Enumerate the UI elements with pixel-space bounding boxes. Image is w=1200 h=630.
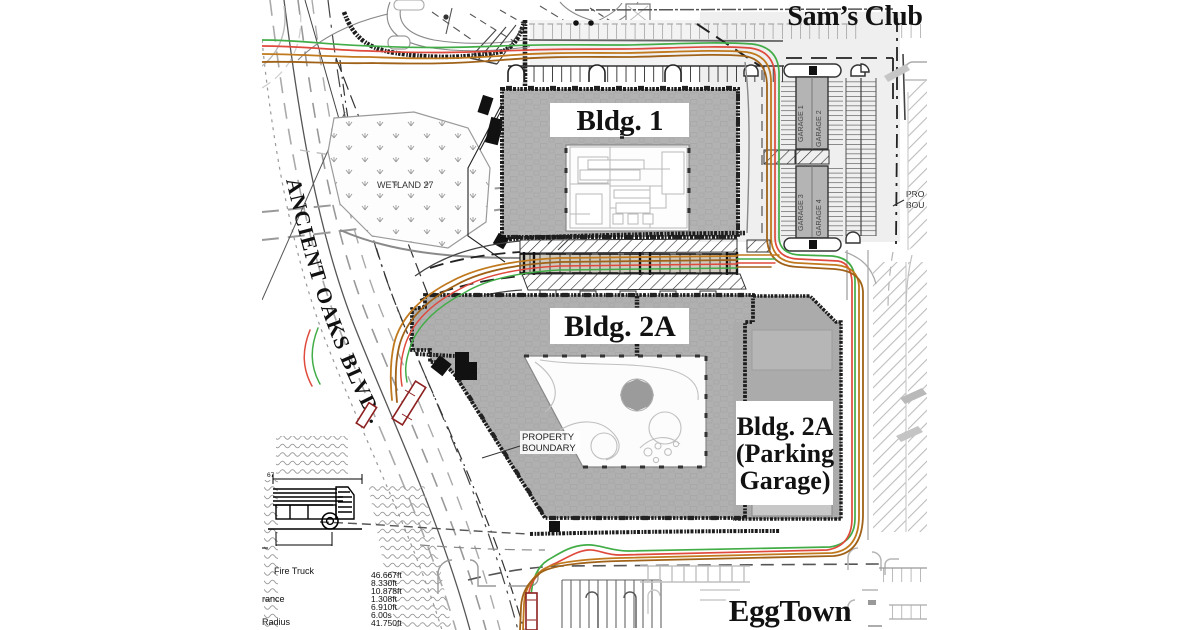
svg-text:BOUNDARY: BOUNDARY [522, 443, 576, 454]
svg-text:Bldg. 2A: Bldg. 2A [564, 310, 676, 343]
svg-text:GARAGE 4: GARAGE 4 [814, 199, 823, 236]
svg-text:Bldg. 2A: Bldg. 2A [737, 412, 834, 441]
svg-text:WETLAND 27: WETLAND 27 [377, 180, 434, 190]
svg-text:(Parking: (Parking [736, 439, 834, 468]
svg-text:GARAGE 3: GARAGE 3 [796, 194, 805, 231]
svg-text:Radius: Radius [262, 617, 291, 627]
svg-text:EggTown: EggTown [729, 593, 852, 628]
svg-text:Sam’s Club: Sam’s Club [787, 1, 922, 32]
svg-text:67: 67 [267, 472, 275, 479]
svg-text:Fire Truck: Fire Truck [274, 566, 315, 576]
svg-text:GARAGE 1: GARAGE 1 [796, 105, 805, 142]
svg-text:rance: rance [262, 594, 285, 604]
svg-text:Garage): Garage) [740, 466, 831, 495]
svg-text:GARAGE 2: GARAGE 2 [814, 110, 823, 147]
svg-text:PROPERTY: PROPERTY [522, 432, 575, 443]
svg-text:41.750ft: 41.750ft [371, 618, 402, 628]
